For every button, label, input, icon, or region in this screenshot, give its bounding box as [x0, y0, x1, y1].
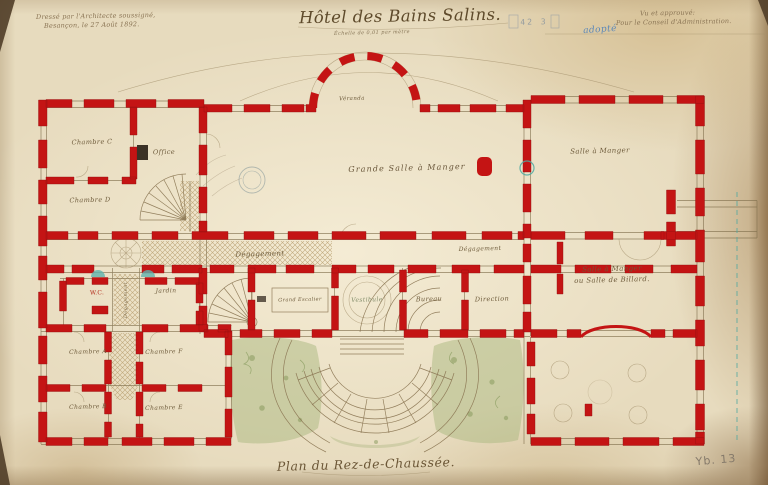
room-label-chambre-f: Chambre F — [145, 348, 183, 356]
room-label-salle-billard-line1: Salle à Manger — [582, 264, 642, 274]
room-label-jardin: Jardin — [155, 287, 176, 295]
room-label-chambre-e: Chambre E — [145, 404, 183, 412]
room-label-bureau: Bureau — [416, 295, 443, 304]
room-label-salle-a-manger: Salle à Manger — [570, 146, 630, 156]
architect-note-line2: Besançon, le 27 Août 1892. — [44, 20, 140, 30]
scanned-plan-page: Dressé par l'Architecte soussigné, Besan… — [0, 0, 768, 485]
corridor-label-degagement-vertical: Dégagement — [123, 282, 129, 318]
room-label-wc: W.C. — [90, 289, 104, 296]
room-label-veranda: Véranda — [339, 96, 365, 103]
room-label-grand-escalier: Grand Escalier — [278, 296, 322, 303]
room-label-chambre-b: Chambre B — [69, 403, 107, 411]
room-label-chambre-a: Chambre A — [69, 348, 107, 356]
approval-line1: Vu et approuvé: — [640, 9, 695, 18]
corridor-label-degagement-main: Dégagement — [235, 249, 284, 258]
red-walls — [39, 56, 705, 446]
catalog-stamp: 42 3 — [520, 17, 547, 27]
drawing-title: Hôtel des Bains Salins. — [299, 5, 501, 28]
floor-plan-drawing — [0, 0, 768, 485]
room-label-chambre-d: Chambre D — [69, 195, 110, 204]
corridor-label-degagement-right: Dégagement — [459, 245, 502, 253]
room-label-chambre-c: Chambre C — [71, 137, 112, 146]
room-label-office: Office — [153, 148, 175, 157]
room-label-vestibule: Vestibule — [351, 296, 383, 304]
room-label-direction: Direction — [475, 295, 509, 304]
